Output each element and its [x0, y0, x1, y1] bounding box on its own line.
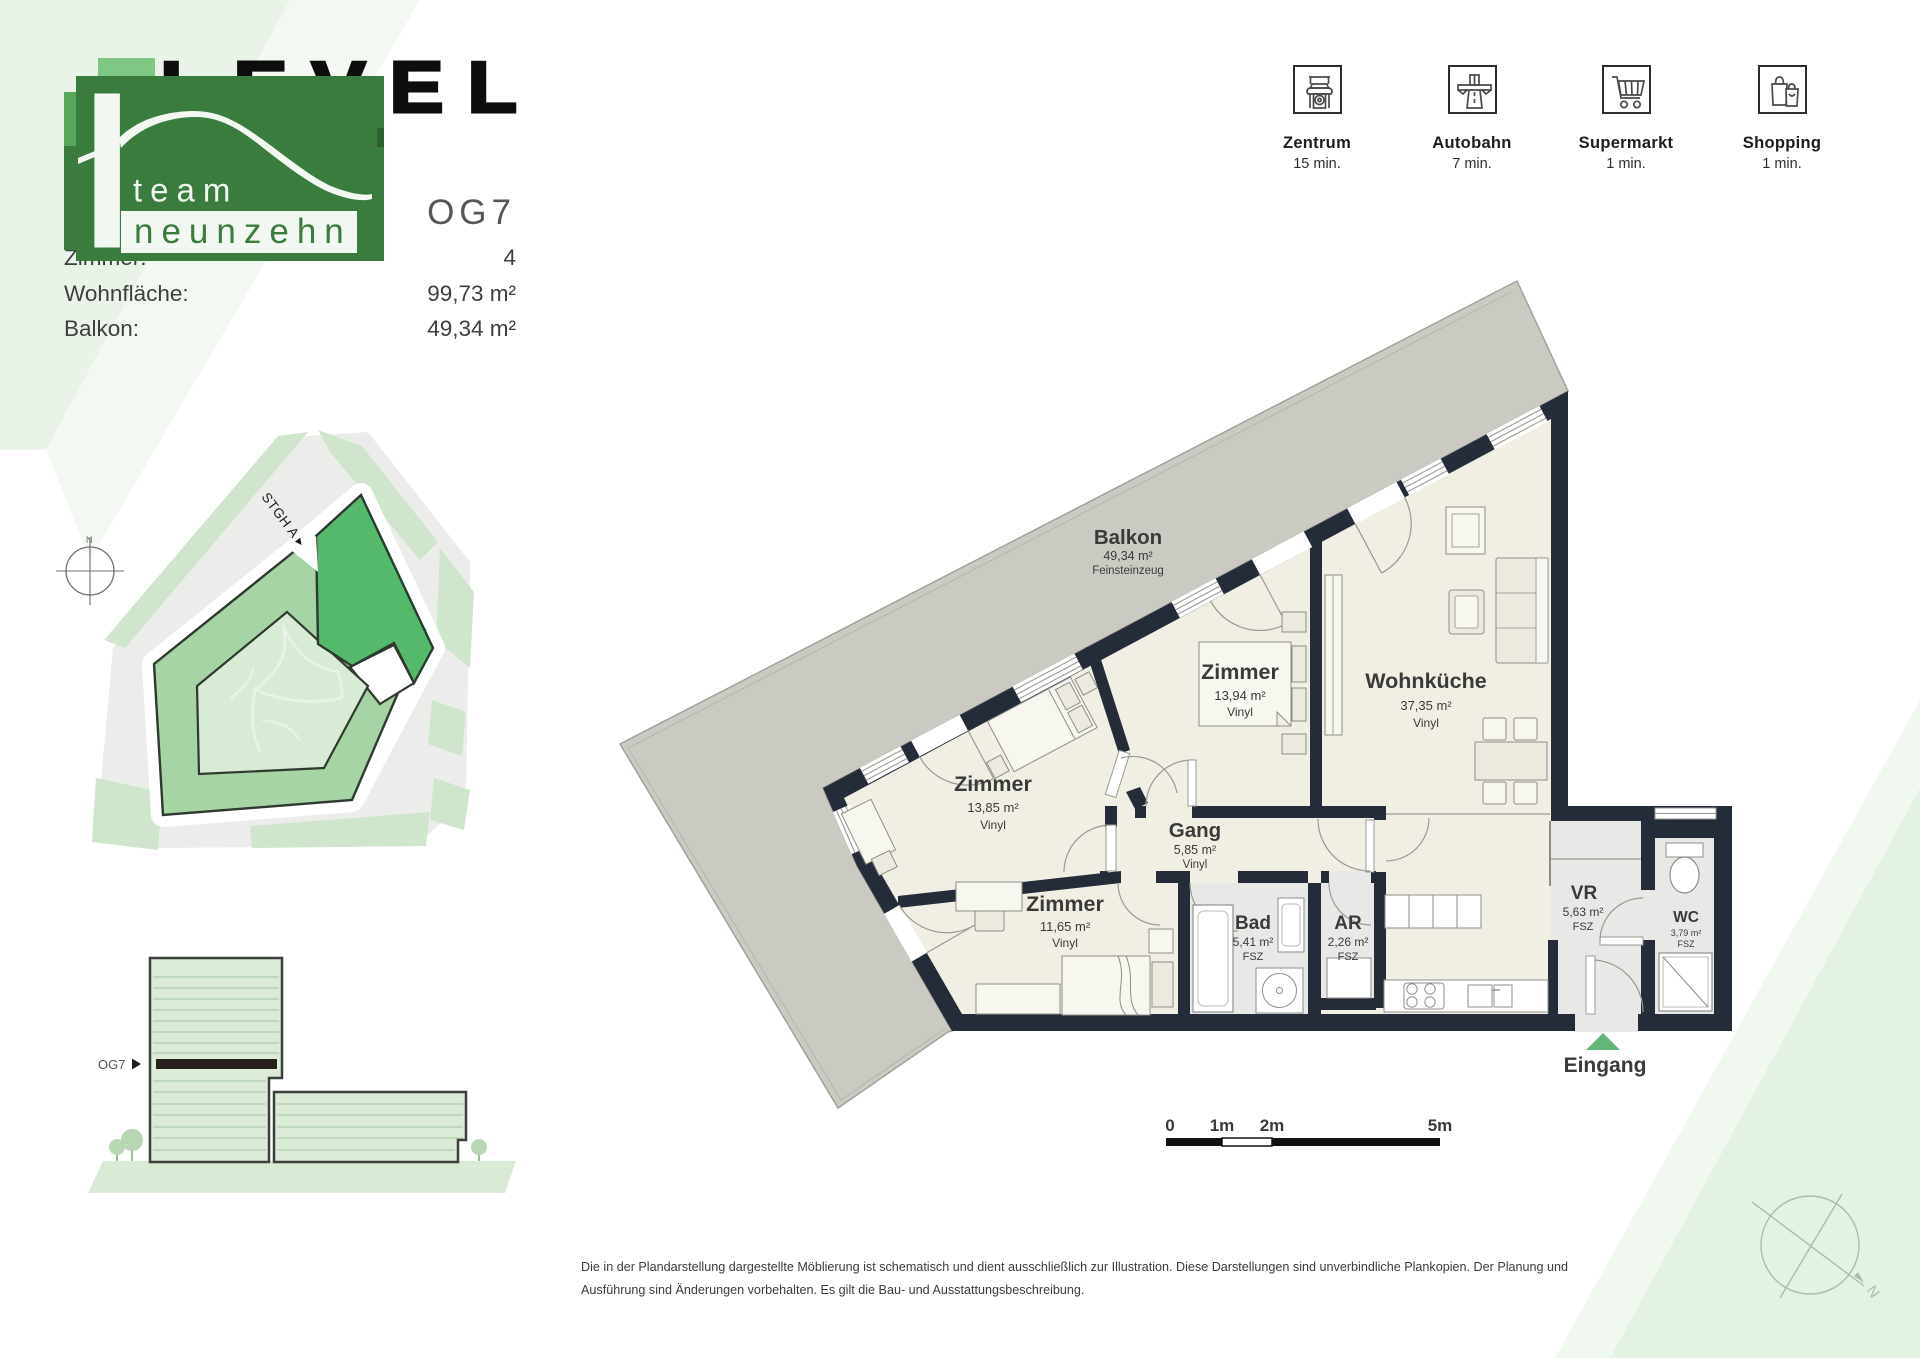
svg-text:FSZ: FSZ: [1678, 939, 1696, 949]
svg-text:WC: WC: [1673, 909, 1699, 926]
svg-text:FSZ: FSZ: [1243, 951, 1264, 963]
svg-text:13,85 m²: 13,85 m²: [967, 800, 1019, 815]
svg-text:0: 0: [1165, 1116, 1174, 1135]
svg-text:Zimmer: Zimmer: [1026, 892, 1104, 916]
svg-text:Gang: Gang: [1169, 819, 1221, 842]
svg-text:OG7: OG7: [98, 1057, 125, 1072]
svg-text:5m: 5m: [1428, 1116, 1453, 1135]
svg-text:1m: 1m: [1210, 1116, 1235, 1135]
svg-text:Vinyl: Vinyl: [1052, 936, 1078, 950]
svg-text:Bad: Bad: [1235, 913, 1271, 934]
svg-text:team: team: [133, 172, 238, 209]
svg-text:Zimmer: Zimmer: [954, 772, 1032, 796]
svg-text:37,35 m²: 37,35 m²: [1400, 698, 1452, 713]
svg-text:5,85 m²: 5,85 m²: [1174, 843, 1216, 857]
svg-text:Feinsteinzeug: Feinsteinzeug: [1092, 565, 1164, 577]
svg-text:Wohnküche: Wohnküche: [1365, 669, 1486, 693]
svg-text:Balkon: Balkon: [1094, 526, 1162, 549]
svg-text:13,94 m²: 13,94 m²: [1214, 688, 1266, 703]
svg-text:Vinyl: Vinyl: [1183, 859, 1208, 871]
svg-text:11,65 m²: 11,65 m²: [1040, 919, 1091, 934]
svg-text:AR: AR: [1334, 913, 1362, 934]
svg-text:FSZ: FSZ: [1338, 951, 1359, 963]
svg-text:2,26 m²: 2,26 m²: [1328, 935, 1369, 949]
svg-text:5,63 m²: 5,63 m²: [1563, 905, 1604, 919]
svg-text:5,41 m²: 5,41 m²: [1233, 935, 1274, 949]
svg-text:FSZ: FSZ: [1573, 921, 1594, 933]
svg-text:49,34 m²: 49,34 m²: [1103, 549, 1152, 563]
svg-text:Zimmer: Zimmer: [1201, 660, 1279, 684]
svg-text:N: N: [86, 535, 93, 545]
svg-text:2m: 2m: [1260, 1116, 1285, 1135]
svg-text:3,79 m²: 3,79 m²: [1671, 928, 1702, 938]
svg-text:VR: VR: [1571, 883, 1598, 904]
svg-text:Vinyl: Vinyl: [1227, 705, 1253, 719]
svg-text:Eingang: Eingang: [1564, 1054, 1647, 1077]
svg-text:Vinyl: Vinyl: [980, 818, 1006, 832]
svg-text:Vinyl: Vinyl: [1413, 716, 1439, 730]
